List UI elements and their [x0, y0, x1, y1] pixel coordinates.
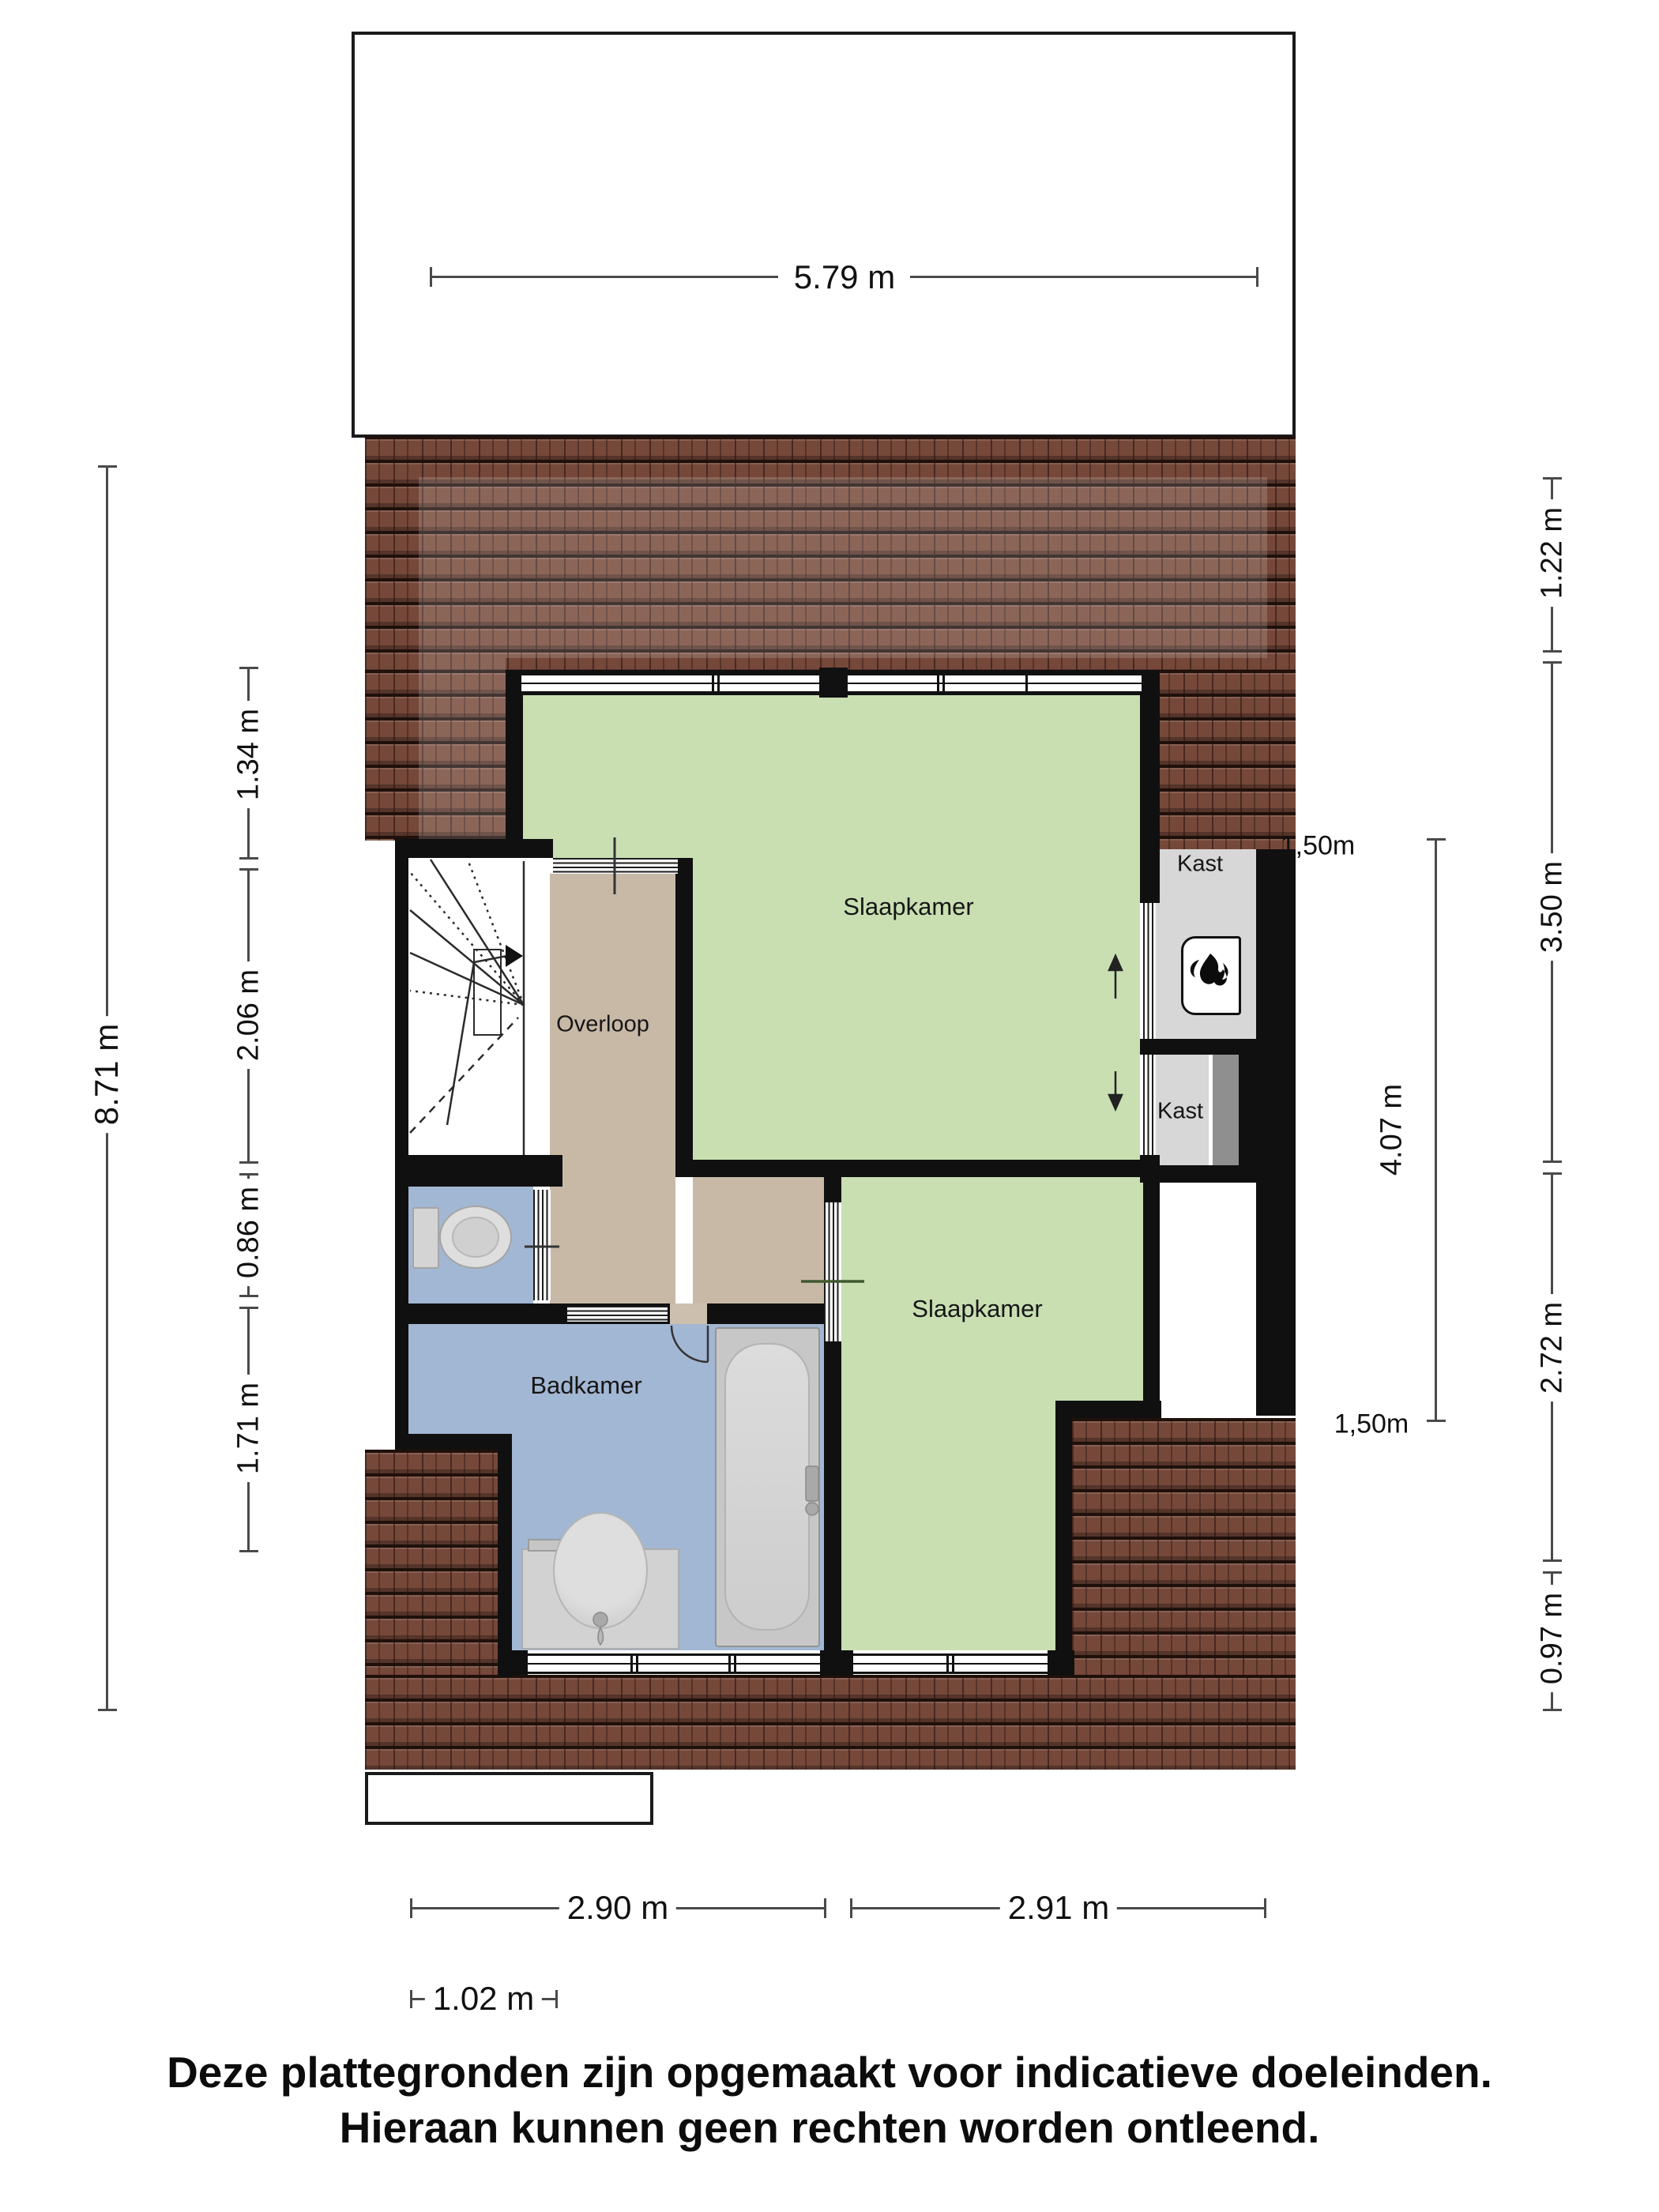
- window-overloop-top: [553, 858, 678, 874]
- dim-label-2-72: 2.72 m: [1534, 1294, 1571, 1401]
- window-divider: [952, 1653, 954, 1674]
- headroom-label-top: 1,50m: [1273, 829, 1364, 863]
- door-opening-badkamer: [670, 1303, 707, 1324]
- room-stairwell: [408, 858, 545, 1155]
- wall-slk2-right: [1143, 1177, 1160, 1418]
- boiler-unit: [1181, 936, 1241, 1015]
- dim-label-1-34: 1.34 m: [231, 701, 268, 808]
- room-slaapkamer-top-a: [523, 695, 1140, 858]
- sliding-door-track-b: [1143, 1055, 1156, 1155]
- wall-bedroom-right-b: [1140, 1155, 1160, 1179]
- window-divider: [937, 673, 939, 694]
- wall-roofcut-v: [1055, 1418, 1072, 1652]
- label-slaapkamer-top: Slaapkamer: [843, 893, 973, 921]
- wall-badkamer-step: [395, 1434, 512, 1450]
- room-overloop-a: [550, 874, 675, 1303]
- dim-label-2-90: 2.90 m: [559, 1887, 676, 1928]
- disclaimer: Deze plattegronden zijn opgemaakt voor i…: [0, 2045, 1659, 2156]
- window-divider: [636, 1653, 638, 1674]
- room-overloop-b: [693, 1177, 824, 1303]
- wall-overloop-right: [675, 858, 693, 1160]
- toilet-bowl-inner: [452, 1217, 499, 1258]
- label-slaapkamer-bottom: Slaapkamer: [912, 1295, 1042, 1323]
- window-divider: [734, 1653, 736, 1674]
- label-kast-bottom: Kast: [1157, 1099, 1203, 1125]
- window-badkamer-bottom: [528, 1653, 820, 1674]
- label-kast-top: Kast: [1177, 852, 1223, 878]
- disclaimer-line-2: Hieraan kunnen geen rechten worden ontle…: [0, 2100, 1659, 2155]
- dim-label-0-86: 0.86 m: [231, 1179, 268, 1286]
- wall-stair-bottom: [395, 1155, 562, 1187]
- window-divider: [728, 1653, 731, 1674]
- window-divider: [712, 673, 714, 694]
- wall-left-bedroom: [506, 670, 523, 839]
- window-top-left: [521, 673, 819, 694]
- dim-label-0-97: 0.97 m: [1534, 1585, 1571, 1692]
- wall-window-corner-1: [498, 1650, 528, 1676]
- wall-slk2-left-bottom: [824, 1341, 841, 1650]
- wall-badkamer-left: [498, 1450, 512, 1676]
- roof-shade-left: [419, 658, 506, 841]
- dim-label-1-02: 1.02 m: [425, 1978, 542, 2019]
- roof-right: [1155, 670, 1296, 851]
- window-toilet: [533, 1190, 551, 1300]
- bathtub-inner: [724, 1343, 810, 1631]
- window-divider: [946, 1653, 949, 1674]
- wall-roofcut-h: [1055, 1401, 1161, 1418]
- dim-label-left-total: 8.71 m: [86, 1016, 127, 1133]
- floorplan-page: Slaapkamer Slaapkamer Overloop Badkamer …: [0, 0, 1659, 2212]
- wall-bedroom-bottom: [675, 1160, 1160, 1177]
- window-divider: [717, 673, 720, 694]
- wall-bedroom-right: [1140, 670, 1160, 903]
- wall-kast2-right: [1239, 1055, 1256, 1165]
- roof-shade-top: [419, 477, 1267, 658]
- window-divider: [630, 1653, 633, 1674]
- window-slk2-bottom: [853, 1653, 1048, 1674]
- sliding-door-track-a: [1143, 903, 1156, 1039]
- bottom-extension-outline: [365, 1772, 653, 1825]
- label-overloop: Overloop: [556, 1012, 649, 1038]
- dim-label-1-22: 1.22 m: [1534, 499, 1571, 607]
- window-divider: [1025, 673, 1028, 694]
- toilet-tank: [412, 1207, 439, 1269]
- label-badkamer: Badkamer: [530, 1371, 641, 1400]
- dim-label-1-71: 1.71 m: [231, 1375, 268, 1482]
- wall-right-column: [1256, 849, 1296, 1416]
- dormer-outline: [352, 32, 1296, 438]
- dim-label-4-07: 4.07 m: [1374, 1076, 1411, 1183]
- dim-label-2-06: 2.06 m: [231, 961, 268, 1069]
- window-top-right: [848, 673, 1142, 694]
- window-top-mullion: [819, 668, 848, 698]
- duct-strip: [1213, 1055, 1239, 1165]
- window-slk2-left: [824, 1202, 841, 1341]
- dim-label-2-91: 2.91 m: [1000, 1887, 1117, 1928]
- sink-basin: [553, 1512, 648, 1629]
- window-badkamer-top: [567, 1306, 668, 1322]
- dim-label-top: 5.79 m: [786, 257, 903, 298]
- headroom-label-bottom: 1,50m: [1326, 1408, 1417, 1442]
- wall-window-corner-2: [820, 1650, 853, 1676]
- dim-label-3-50: 3.50 m: [1534, 853, 1571, 961]
- wall-left-outer: [395, 839, 408, 1435]
- disclaimer-line-1: Deze plattegronden zijn opgemaakt voor i…: [0, 2045, 1659, 2100]
- wall-stair-top: [395, 839, 553, 858]
- wall-window-corner-3: [1048, 1650, 1074, 1676]
- window-divider: [942, 673, 945, 694]
- wall-slk2-left-top: [824, 1177, 841, 1202]
- roof-bottom: [365, 1675, 1296, 1770]
